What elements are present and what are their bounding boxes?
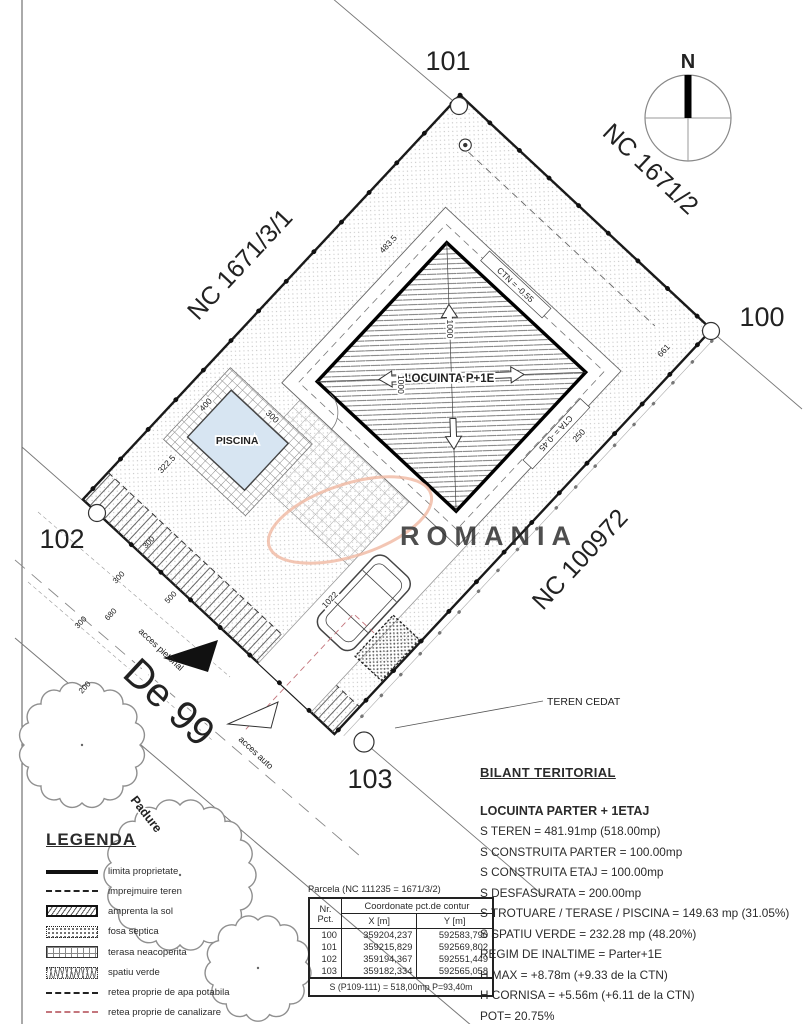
legend-item: terasa neacoperita bbox=[46, 946, 306, 958]
teren-cedat-callout: TEREN CEDAT bbox=[395, 696, 621, 728]
legend-swatch-terrace bbox=[46, 946, 98, 958]
site-plan-page: Padure PISCINA LOCUINTA P+1E bbox=[0, 0, 807, 1024]
bilant-line: POT= 20.75% bbox=[480, 1009, 802, 1023]
vertex-100 bbox=[703, 323, 720, 340]
legend-label: imprejmuire teren bbox=[108, 886, 182, 897]
legend-item: retea proprie de canalizare bbox=[46, 1007, 306, 1018]
bilant-subtitle: LOCUINTA PARTER + 1ETAJ bbox=[480, 804, 802, 818]
bilant-line: S TEREN = 481.91mp (518.00mp) bbox=[480, 824, 802, 838]
legend-swatch-property-limit bbox=[46, 870, 98, 874]
bilant-line: H MAX = +8.78m (+9.33 de la CTN) bbox=[480, 968, 802, 982]
bilant-title: BILANT TERITORIAL bbox=[480, 765, 802, 780]
svg-text:1000: 1000 bbox=[396, 375, 406, 394]
svg-text:500: 500 bbox=[163, 589, 179, 605]
bilant-line: H CORNISA = +5.56m (+6.11 de la CTN) bbox=[480, 988, 802, 1002]
table-row: 103359182,334592565,058 bbox=[309, 965, 493, 978]
col-header-y: Y [m] bbox=[417, 914, 493, 929]
legend-label: spatiu verde bbox=[108, 967, 160, 978]
legend-label: limita proprietate bbox=[108, 866, 178, 877]
vertex-102 bbox=[89, 505, 106, 522]
table-row: 102359194,367592551,449 bbox=[309, 953, 493, 965]
col-header-group: Coordonate pct.de contur bbox=[341, 898, 493, 914]
coordinate-table-title: Parcela (NC 111235 = 1671/3/2) bbox=[308, 884, 494, 894]
compass: N bbox=[645, 51, 731, 161]
corner-label-101: 101 bbox=[425, 46, 470, 76]
bilant-line: REGIM DE INALTIME = Parter+1E bbox=[480, 947, 802, 961]
bilant-line: S CONSTRUITA PARTER = 100.00mp bbox=[480, 845, 802, 859]
legend-swatch-sewer bbox=[46, 1011, 98, 1013]
svg-text:300: 300 bbox=[111, 569, 127, 585]
corner-label-100: 100 bbox=[739, 302, 784, 332]
svg-text:680: 680 bbox=[103, 606, 119, 622]
legend-swatch-footprint bbox=[46, 905, 98, 917]
col-header-nr: Nr. Pct. bbox=[309, 898, 341, 929]
legend-title: LEGENDA bbox=[46, 830, 306, 850]
bilant-line: S DESFASURATA = 200.00mp bbox=[480, 886, 802, 900]
corner-label-103: 103 bbox=[347, 764, 392, 794]
table-row: 101359215,829592569,802 bbox=[309, 941, 493, 953]
building-label: LOCUINTA P+1E bbox=[405, 373, 495, 385]
vertex-101 bbox=[451, 98, 468, 115]
legend-item: spatiu verde bbox=[46, 967, 306, 979]
legend-label: terasa neacoperita bbox=[108, 947, 187, 958]
legend-label: fosa septica bbox=[108, 926, 159, 937]
legend: LEGENDA limita proprietate imprejmuire t… bbox=[46, 830, 306, 1024]
col-header-x: X [m] bbox=[341, 914, 416, 929]
legend-swatch-water bbox=[46, 992, 98, 994]
coordinate-table: Parcela (NC 111235 = 1671/3/2) Nr. Pct. … bbox=[308, 884, 494, 997]
pool-label: PISCINA bbox=[216, 435, 259, 447]
legend-label: amprenta la sol bbox=[108, 906, 173, 917]
access-auto: acces auto bbox=[228, 702, 278, 771]
compass-needle bbox=[685, 75, 692, 118]
table-footer-row: S (P109-111) = 518,00mp P=93,40m bbox=[309, 978, 493, 996]
legend-item: retea proprie de apa potabila bbox=[46, 987, 306, 998]
bilant-line: S SPATIU VERDE = 232.28 mp (48.20%) bbox=[480, 927, 802, 941]
territorial-balance: BILANT TERITORIAL LOCUINTA PARTER + 1ETA… bbox=[480, 765, 802, 1024]
bilant-line: S CONSTRUITA ETAJ = 100.00mp bbox=[480, 865, 802, 879]
legend-swatch-septic bbox=[46, 926, 98, 938]
bilant-line: S TROTUARE / TERASE / PISCINA = 149.63 m… bbox=[480, 906, 802, 920]
teren-cedat-label: TEREN CEDAT bbox=[547, 696, 621, 708]
watermark-text: ROMANIA bbox=[400, 521, 578, 551]
corner-label-102: 102 bbox=[39, 524, 84, 554]
legend-item: amprenta la sol bbox=[46, 905, 306, 917]
legend-item: fosa septica bbox=[46, 926, 306, 938]
svg-text:300: 300 bbox=[73, 614, 89, 630]
legend-item: imprejmuire teren bbox=[46, 886, 306, 897]
legend-label: retea proprie de canalizare bbox=[108, 1007, 221, 1018]
vertex-103 bbox=[354, 732, 374, 752]
table-row: 100359204,237592583,790 bbox=[309, 929, 493, 942]
legend-item: limita proprietate bbox=[46, 866, 306, 877]
compass-north-label: N bbox=[681, 51, 695, 73]
svg-text:acces auto: acces auto bbox=[237, 734, 276, 771]
legend-swatch-green bbox=[46, 967, 98, 979]
legend-label: retea proprie de apa potabila bbox=[108, 987, 229, 998]
svg-text:1000: 1000 bbox=[445, 319, 455, 338]
legend-swatch-fence bbox=[46, 890, 98, 892]
